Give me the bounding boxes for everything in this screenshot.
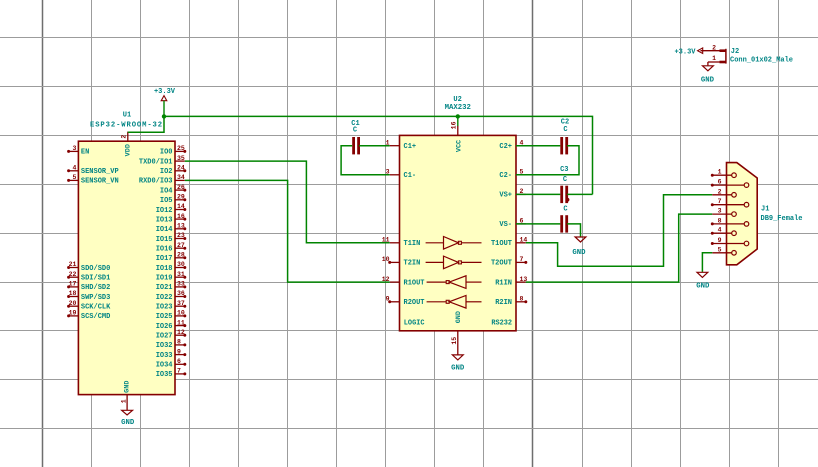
svg-text:IO5: IO5 [160, 197, 173, 205]
svg-text:C2-: C2- [499, 172, 512, 180]
svg-text:IO12: IO12 [156, 207, 173, 215]
svg-text:IO4: IO4 [160, 187, 173, 195]
svg-text:U1: U1 [123, 112, 131, 120]
svg-text:SDO/SD0: SDO/SD0 [81, 265, 110, 273]
svg-text:SDI/SD1: SDI/SD1 [81, 275, 110, 283]
svg-text:8: 8 [718, 217, 722, 224]
svg-text:VS+: VS+ [499, 192, 512, 200]
svg-text:IO26: IO26 [156, 323, 173, 331]
svg-text:+3.3V: +3.3V [154, 88, 176, 96]
svg-text:T2OUT: T2OUT [491, 260, 512, 268]
svg-text:C: C [563, 205, 567, 213]
svg-text:R1OUT: R1OUT [404, 279, 425, 287]
svg-text:9: 9 [177, 348, 181, 355]
svg-text:VCC: VCC [455, 140, 463, 152]
svg-text:2: 2 [712, 45, 716, 52]
svg-text:IO23: IO23 [156, 304, 173, 312]
svg-text:8: 8 [177, 339, 181, 346]
svg-text:3: 3 [718, 208, 722, 215]
svg-text:C1-: C1- [404, 172, 417, 180]
svg-text:T2IN: T2IN [404, 260, 421, 268]
svg-text:7: 7 [177, 368, 181, 375]
svg-text:J2: J2 [731, 48, 739, 56]
svg-text:MAX232: MAX232 [445, 104, 471, 112]
svg-text:SCK/CLK: SCK/CLK [81, 304, 111, 312]
svg-text:7: 7 [520, 256, 524, 263]
svg-text:GND: GND [451, 365, 465, 373]
svg-text:1: 1 [121, 399, 128, 403]
svg-text:2: 2 [121, 135, 128, 139]
svg-text:15: 15 [451, 337, 458, 345]
svg-text:SENSOR_VN: SENSOR_VN [81, 178, 119, 186]
svg-text:RS232: RS232 [491, 320, 512, 328]
svg-text:IO14: IO14 [156, 226, 173, 234]
svg-text:5: 5 [718, 246, 722, 253]
svg-text:IO21: IO21 [156, 284, 173, 292]
svg-text:8: 8 [520, 296, 524, 303]
svg-text:GND: GND [701, 76, 715, 84]
svg-text:RXD0/IO3: RXD0/IO3 [139, 178, 173, 186]
svg-text:IO2: IO2 [160, 168, 173, 176]
svg-text:C: C [563, 126, 567, 134]
svg-text:SENSOR_VP: SENSOR_VP [81, 168, 119, 176]
svg-text:7: 7 [718, 198, 722, 205]
svg-text:IO19: IO19 [156, 275, 173, 283]
svg-text:4: 4 [72, 165, 76, 172]
svg-text:16: 16 [451, 121, 458, 129]
svg-text:GND: GND [455, 311, 463, 323]
svg-text:+3.3V: +3.3V [674, 48, 696, 56]
svg-text:SCS/CMD: SCS/CMD [81, 313, 110, 321]
svg-text:SWP/SD3: SWP/SD3 [81, 294, 110, 302]
svg-text:3: 3 [72, 145, 76, 152]
svg-text:IO16: IO16 [156, 246, 173, 254]
svg-text:LOGIC: LOGIC [404, 320, 425, 328]
svg-text:TXD0/IO1: TXD0/IO1 [139, 158, 173, 166]
svg-text:GND: GND [572, 249, 586, 257]
svg-text:IO25: IO25 [156, 313, 173, 321]
svg-text:IO34: IO34 [156, 362, 173, 370]
svg-text:4: 4 [718, 227, 722, 234]
svg-text:EN: EN [81, 149, 89, 157]
svg-text:T1OUT: T1OUT [491, 240, 512, 248]
svg-text:IO0: IO0 [160, 149, 173, 157]
svg-text:GND: GND [696, 283, 710, 291]
svg-text:R2IN: R2IN [495, 299, 512, 307]
svg-text:R2OUT: R2OUT [404, 299, 425, 307]
svg-text:C: C [563, 176, 567, 184]
svg-text:1: 1 [712, 55, 716, 62]
svg-text:IO35: IO35 [156, 371, 173, 379]
svg-text:IO32: IO32 [156, 342, 173, 350]
svg-text:9: 9 [718, 237, 722, 244]
svg-text:VS-: VS- [499, 221, 512, 229]
svg-text:SHD/SD2: SHD/SD2 [81, 284, 110, 292]
svg-text:IO15: IO15 [156, 236, 173, 244]
svg-text:J1: J1 [761, 206, 769, 214]
svg-text:DB9_Female: DB9_Female [761, 215, 803, 223]
svg-text:34: 34 [177, 174, 185, 181]
svg-text:IO18: IO18 [156, 265, 173, 273]
svg-text:C1+: C1+ [404, 143, 417, 151]
svg-text:GND: GND [121, 419, 135, 427]
svg-text:C3: C3 [560, 166, 568, 174]
svg-text:ESP32-WROOM-32: ESP32-WROOM-32 [90, 121, 163, 129]
svg-text:Conn_01x02_Male: Conn_01x02_Male [730, 57, 793, 65]
svg-text:C2+: C2+ [499, 143, 512, 151]
svg-text:IO33: IO33 [156, 352, 173, 360]
svg-text:6: 6 [718, 179, 722, 186]
svg-text:IO17: IO17 [156, 255, 173, 263]
svg-text:IO27: IO27 [156, 333, 173, 341]
svg-text:C: C [353, 127, 357, 135]
svg-text:IO13: IO13 [156, 216, 173, 224]
svg-text:5: 5 [72, 174, 76, 181]
svg-text:IO22: IO22 [156, 294, 173, 302]
svg-text:2: 2 [718, 188, 722, 195]
svg-text:35: 35 [177, 155, 185, 162]
svg-text:6: 6 [177, 358, 181, 365]
svg-text:R1IN: R1IN [495, 279, 512, 287]
svg-text:T1IN: T1IN [404, 240, 421, 248]
svg-text:GND: GND [124, 381, 132, 393]
svg-text:U2: U2 [453, 96, 461, 104]
svg-text:1: 1 [718, 169, 722, 176]
svg-text:VDD: VDD [125, 144, 133, 156]
